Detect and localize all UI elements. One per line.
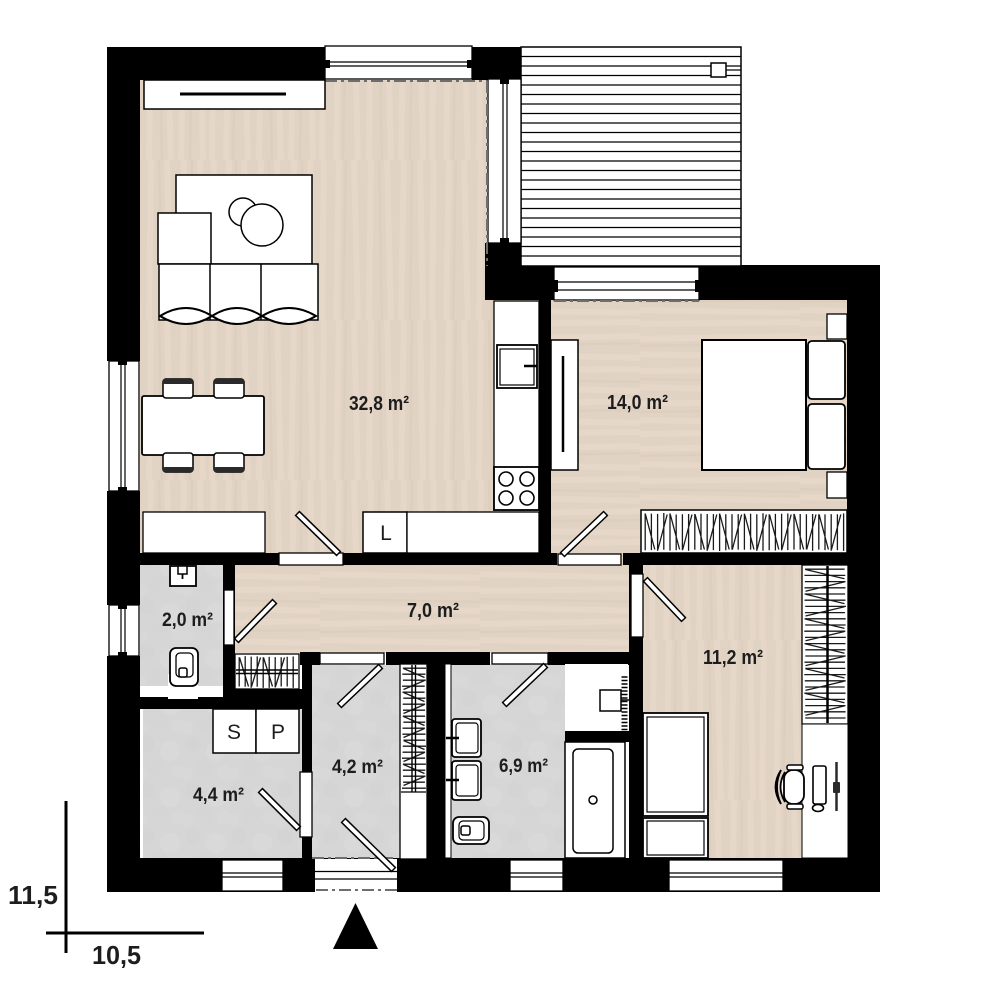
svg-text:2,0 m²: 2,0 m² (162, 610, 213, 631)
svg-text:10,5: 10,5 (92, 940, 141, 970)
svg-text:4,4 m²: 4,4 m² (193, 785, 244, 806)
svg-text:6,9 m²: 6,9 m² (499, 756, 548, 777)
svg-text:P: P (271, 721, 285, 744)
svg-text:32,8 m²: 32,8 m² (349, 393, 409, 415)
svg-text:S: S (227, 721, 241, 744)
svg-text:7,0 m²: 7,0 m² (407, 600, 459, 622)
svg-text:11,2 m²: 11,2 m² (703, 647, 763, 669)
svg-text:14,0 m²: 14,0 m² (607, 392, 668, 414)
svg-text:11,5: 11,5 (8, 880, 58, 910)
svg-text:L: L (380, 522, 392, 545)
svg-text:4,2 m²: 4,2 m² (332, 757, 383, 778)
